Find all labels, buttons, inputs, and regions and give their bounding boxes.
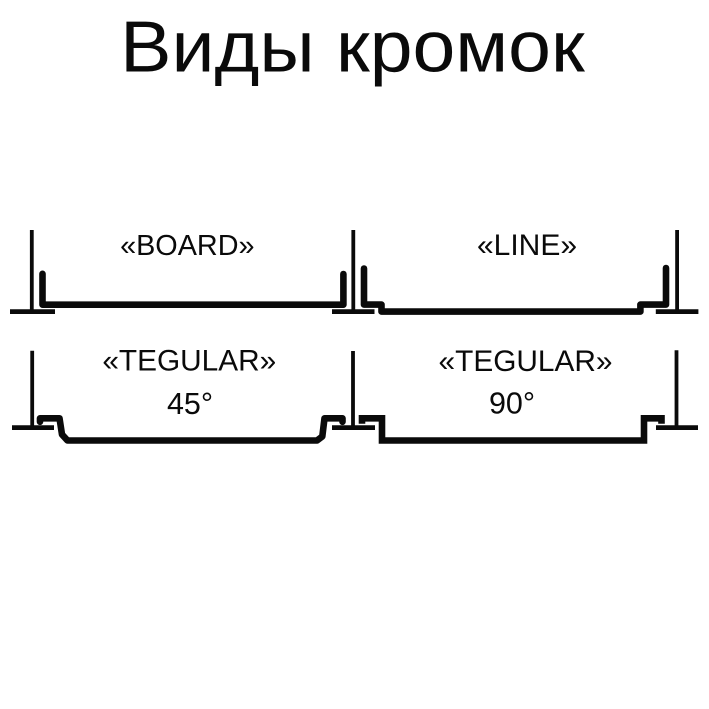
svg-text:«TEGULAR»: «TEGULAR» (102, 345, 276, 378)
svg-text:90°: 90° (489, 387, 535, 421)
svg-text:«LINE»: «LINE» (477, 229, 577, 262)
svg-text:«BOARD»: «BOARD» (120, 230, 254, 262)
svg-text:Виды кромок: Виды кромок (120, 8, 585, 88)
svg-text:«TEGULAR»: «TEGULAR» (439, 345, 613, 378)
svg-text:45°: 45° (167, 387, 213, 421)
